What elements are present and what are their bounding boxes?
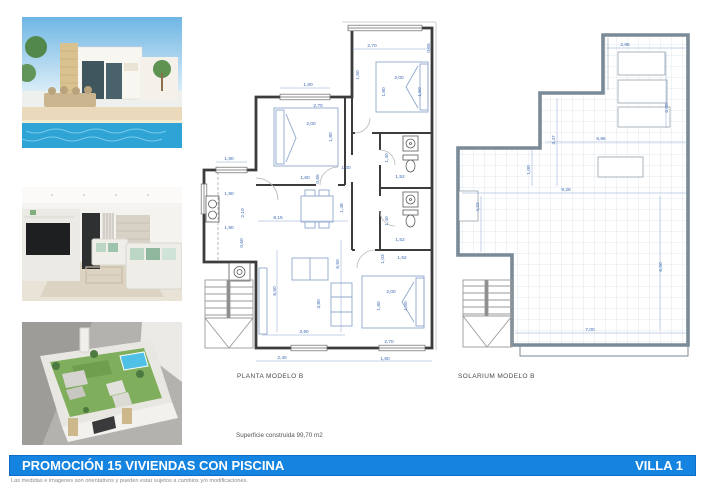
tv-sideboard (259, 268, 267, 334)
dimension-label: 1,00 (341, 165, 351, 171)
dimension-label: 6,50 (335, 259, 341, 269)
awning (124, 63, 138, 71)
washbasin-icon (403, 210, 418, 227)
dimension-label: 1,80 (376, 301, 382, 311)
dimension-label: 1,80 (224, 156, 234, 162)
doors (256, 118, 395, 268)
washing-machine-icon (229, 263, 250, 281)
glass-door-2 (106, 63, 122, 99)
dimension-label: 7,00 (585, 327, 595, 333)
dimension-label: 4,22 (475, 202, 481, 212)
dimension-label: 6,50 (658, 262, 664, 272)
dimension-label: 6,86 (596, 136, 606, 142)
photo-villa-exterior (22, 17, 182, 148)
floor-plan-planta: 2,700,651,502,001,801,501,802,702,001,80… (195, 18, 440, 373)
stone-pillar-2 (122, 408, 132, 424)
dimension-label: 1,50 (355, 70, 361, 80)
planta-label: PLANTA MODELO B (237, 373, 304, 380)
solarium-label: SOLARIUM MODELO B (458, 373, 535, 380)
dimension-label: 2,10 (240, 208, 246, 218)
pool (22, 123, 182, 148)
dimension-label: 2,70 (313, 103, 323, 109)
dimension-label: 1,60 (300, 175, 310, 181)
dimension-label: 1,00 (526, 165, 532, 175)
cushion (130, 248, 144, 260)
balcony-lip (520, 346, 688, 356)
dimension-label: 1,90 (224, 191, 234, 197)
floor-plan-solarium: 2,856,083,471,006,869,264,226,507,00 (450, 25, 698, 365)
dimension-label: 1,80 (303, 82, 313, 88)
photo-living-room (22, 187, 182, 301)
dimension-label: 0,65 (426, 43, 432, 53)
dimension-label: 0,60 (239, 238, 245, 248)
dimension-label: 3,80 (316, 299, 322, 309)
pool-edge (22, 120, 182, 123)
cushion (96, 243, 106, 252)
stone-pillar (68, 418, 78, 436)
interior-walls (256, 97, 432, 250)
plant (52, 362, 60, 370)
plant (90, 350, 98, 358)
footer-bar: PROMOCIÓN 15 VIVIENDAS CON PISCINA VILLA… (9, 455, 696, 476)
dimension-label: 1,50 (417, 87, 423, 97)
dimension-label: 6,08 (664, 103, 670, 113)
kitchen-sink-icon (206, 196, 219, 222)
cushion (146, 248, 160, 260)
dimension-label: 1,80 (381, 87, 387, 97)
deck (22, 107, 182, 122)
photo-rooftop-aerial (22, 322, 182, 445)
stairs (463, 280, 512, 347)
dimension-label: 1,60 (380, 356, 390, 362)
dimension-label: 2,00 (306, 121, 316, 127)
dimension-label: 0,65 (315, 174, 321, 184)
tv-screen (26, 223, 70, 255)
disclaimer: Las medidas e imagenes son orientativos … (11, 478, 248, 484)
dimension-label: 1,52 (397, 255, 407, 261)
surface-note: Superficie construida 99,70 m2 (236, 432, 323, 439)
dimension-label: 1,52 (395, 237, 405, 243)
promo-title: PROMOCIÓN 15 VIVIENDAS CON PISCINA (22, 458, 284, 473)
bed-icon (376, 62, 428, 112)
palm-tree-left (25, 36, 47, 58)
toilet-icon (403, 136, 418, 151)
sofa (292, 258, 352, 326)
dimension-label: 1,48 (339, 203, 345, 213)
villa-exterior-illustration (22, 17, 182, 148)
palm-trunk (161, 73, 163, 91)
dimension-label: 3,47 (551, 135, 557, 145)
dimension-label: 2,70 (384, 339, 394, 345)
dimension-label: 1,03 (380, 254, 386, 264)
dimension-label: 2,85 (620, 42, 630, 48)
stairs (205, 280, 253, 348)
dimension-label: 2,40 (277, 355, 287, 361)
ceiling (22, 187, 182, 203)
dimension-label: 2,00 (386, 289, 396, 295)
dimension-label: 1,90 (224, 225, 234, 231)
dimension-label: 1,40 (384, 216, 390, 226)
dimension-label: 1,52 (395, 174, 405, 180)
living-room-illustration (22, 187, 182, 301)
dimension-label: 2,00 (394, 75, 404, 81)
cushion (162, 248, 176, 260)
dimension-label: 1,40 (384, 153, 390, 163)
dimension-label: 1,80 (328, 132, 334, 142)
chimney (80, 328, 89, 352)
bed-icon (362, 276, 424, 328)
dimension-label: 3,90 (299, 329, 309, 335)
deco-plant-small (30, 210, 36, 215)
dimension-label: 8,15 (273, 215, 283, 221)
cushion (108, 243, 118, 252)
rooftop-illustration (22, 322, 182, 445)
brochure-page: 2,700,651,502,001,801,501,802,702,001,80… (0, 0, 705, 499)
toilet-icon (403, 192, 418, 207)
dimension-label: 9,26 (561, 187, 571, 193)
plant (136, 370, 144, 378)
dimension-label: 6,50 (272, 286, 278, 296)
dining-table (301, 190, 333, 228)
washbasin-icon (403, 155, 418, 172)
villa-label: VILLA 1 (635, 458, 683, 473)
dimension-label: 1,50 (403, 301, 409, 311)
plant (83, 407, 89, 413)
dimension-label: 2,70 (367, 43, 377, 49)
